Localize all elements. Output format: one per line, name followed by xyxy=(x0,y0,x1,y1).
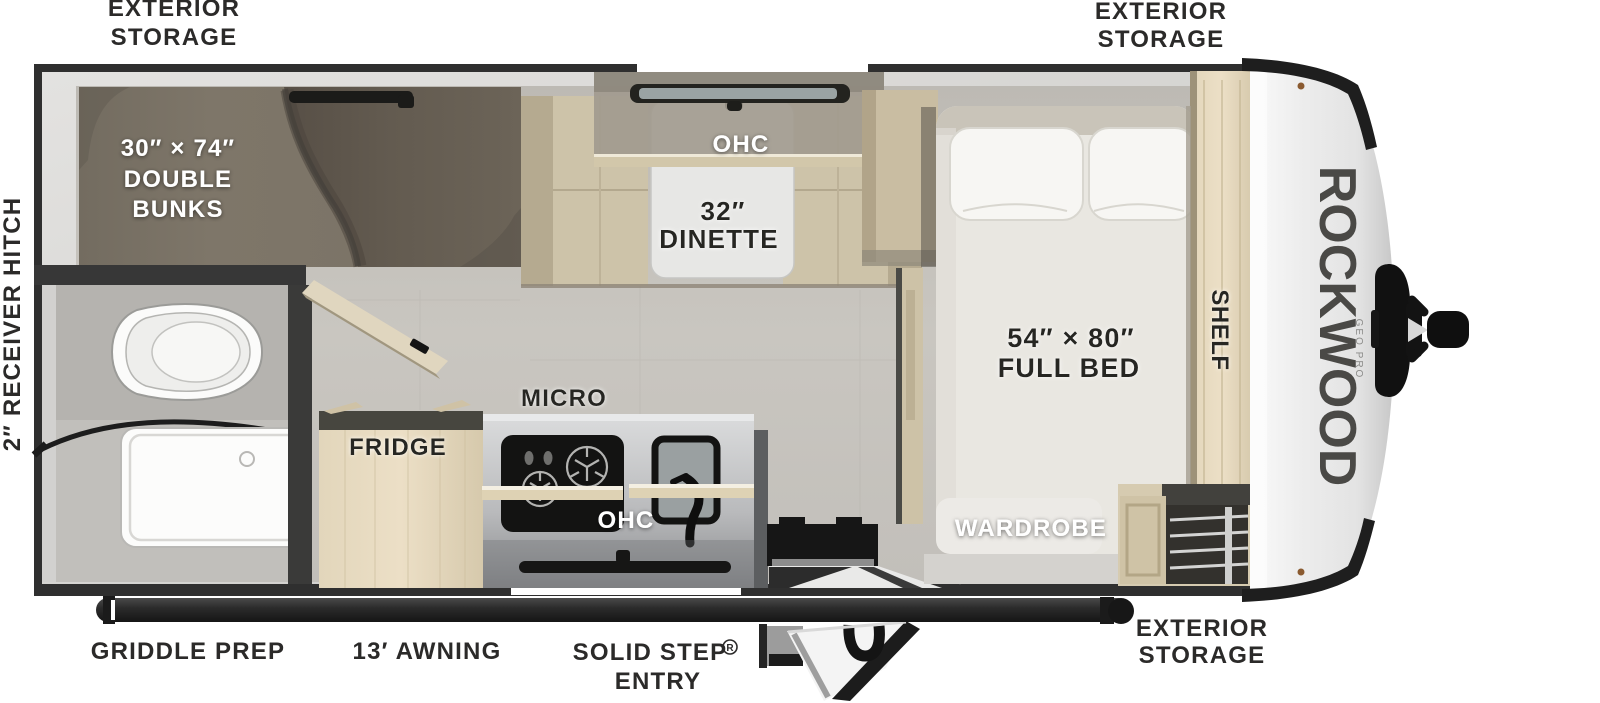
svg-text:STORAGE: STORAGE xyxy=(1098,26,1225,53)
svg-text:GRIDDLE PREP: GRIDDLE PREP xyxy=(91,638,285,665)
svg-text:ENTRY: ENTRY xyxy=(615,668,701,695)
svg-text:SOLID STEP: SOLID STEP xyxy=(573,639,728,666)
svg-text:SHELF: SHELF xyxy=(1206,289,1233,370)
svg-text:EXTERIOR: EXTERIOR xyxy=(1095,0,1227,25)
svg-text:STORAGE: STORAGE xyxy=(1139,642,1266,669)
svg-text:MICRO: MICRO xyxy=(521,385,607,412)
svg-text:32″: 32″ xyxy=(701,196,746,226)
svg-text:EXTERIOR: EXTERIOR xyxy=(108,0,240,22)
svg-text:2″ RECEIVER HITCH: 2″ RECEIVER HITCH xyxy=(0,197,26,452)
svg-text:OHC: OHC xyxy=(713,131,770,158)
svg-text:EXTERIOR: EXTERIOR xyxy=(1136,615,1268,642)
svg-text:BUNKS: BUNKS xyxy=(132,196,223,223)
svg-text:STORAGE: STORAGE xyxy=(111,24,238,51)
svg-text:54″ × 80″: 54″ × 80″ xyxy=(1007,323,1135,353)
svg-text:DINETTE: DINETTE xyxy=(659,224,779,254)
svg-text:GEO PRO: GEO PRO xyxy=(1353,319,1364,380)
svg-text:OHC: OHC xyxy=(598,507,655,534)
svg-text:FRIDGE: FRIDGE xyxy=(349,434,447,461)
svg-text:FULL BED: FULL BED xyxy=(998,353,1141,383)
svg-text:DOUBLE: DOUBLE xyxy=(124,166,233,193)
svg-text:WARDROBE: WARDROBE xyxy=(955,515,1107,542)
svg-text:R: R xyxy=(726,643,734,654)
svg-text:13′ AWNING: 13′ AWNING xyxy=(353,638,502,665)
svg-text:30″ × 74″: 30″ × 74″ xyxy=(121,135,236,162)
